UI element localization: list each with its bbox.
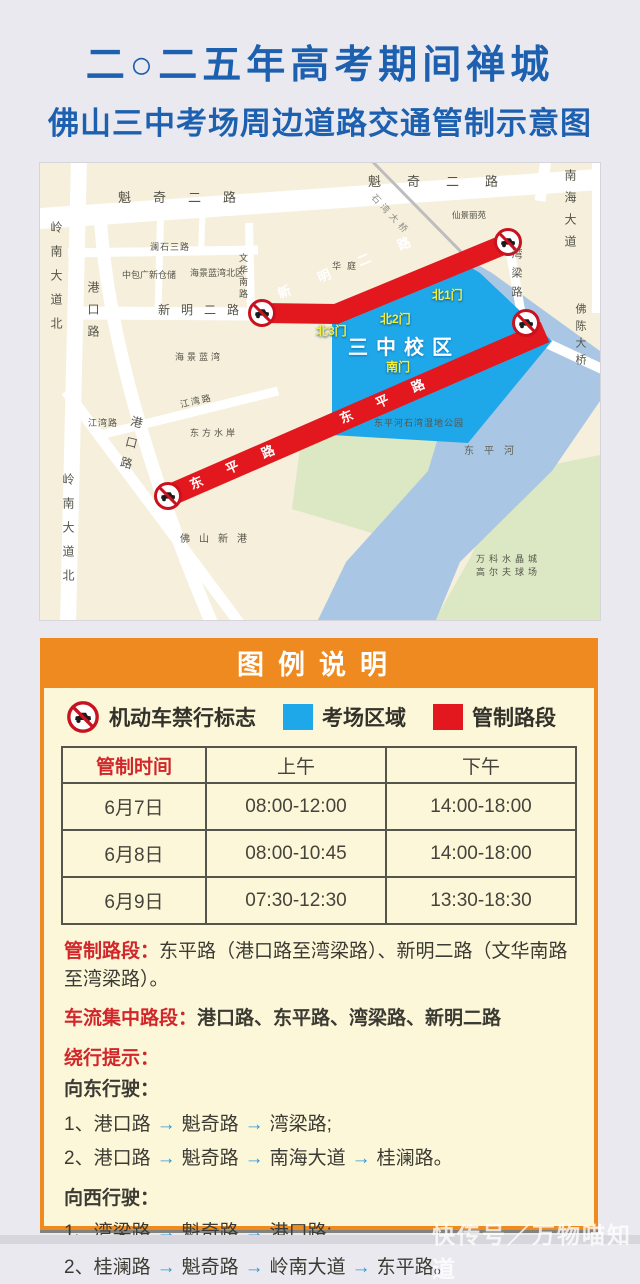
route-stop: 南海大道 (270, 1148, 346, 1169)
traffic-notice-page: { "title": { "line1": "二○二五年高考期间禅城", "li… (0, 0, 640, 1244)
map-label-dongping-he: 东平河 (464, 447, 524, 457)
col-header-morning: 上午 (206, 747, 386, 783)
table-row: 6月7日 08:00-12:00 14:00-18:00 (62, 783, 576, 830)
eastbound-route-2: 2、港口路→魁奇路→南海大道→桂澜路。 (64, 1145, 574, 1173)
no-motor-vehicles-sign (156, 484, 181, 509)
road-minor-3 (540, 163, 546, 201)
arrow-icon: → (151, 1257, 182, 1278)
morning-cell: 08:00-12:00 (206, 783, 386, 830)
date-cell: 6月9日 (62, 877, 206, 924)
no-motor-vehicles-sign (514, 311, 539, 336)
afternoon-cell: 14:00-18:00 (386, 830, 576, 877)
arrow-icon: → (239, 1114, 270, 1135)
map-label-foshan-xingang: 佛山新港 (180, 535, 256, 545)
busy-roads-label: 车流集中路段： (64, 1008, 197, 1029)
school-area-label: 三中校区 (348, 331, 460, 360)
legend-panel: 图例说明 机动车禁行标志 考场区域 管制路段 管制时间 上午 下午 6月7日 0… (40, 638, 598, 1230)
map-label-dongfang-shuian: 东方水岸 (190, 429, 238, 438)
route-stop: 魁奇路 (182, 1257, 239, 1278)
date-cell: 6月8日 (62, 830, 206, 877)
route-stop: 魁奇路 (182, 1148, 239, 1169)
map-label-vanke-1: 万科水晶城 (476, 555, 541, 564)
col-header-afternoon: 下午 (386, 747, 576, 783)
westbound-label: 向西行驶： (64, 1185, 574, 1213)
morning-cell: 08:00-10:45 (206, 830, 386, 877)
map-graphics (40, 163, 600, 620)
restricted-roads-label: 管制路段： (64, 941, 159, 962)
gate-north2-label: 北2门 (380, 313, 411, 325)
page-title: 二○二五年高考期间禅城 佛山三中考场周边道路交通管制示意图 (0, 34, 640, 143)
route-stop: 魁奇路 (182, 1114, 239, 1135)
date-cell: 6月7日 (62, 783, 206, 830)
map-label-wetland-park: 东平河石湾湿地公园 (374, 419, 464, 428)
arrow-icon: → (239, 1257, 270, 1278)
route-stop: 港口路 (94, 1148, 151, 1169)
col-header-time: 管制时间 (62, 747, 206, 783)
legend-exam-area-label: 考场区域 (322, 702, 406, 732)
gate-north3-label: 北3门 (316, 325, 347, 337)
afternoon-cell: 14:00-18:00 (386, 783, 576, 830)
watermark: 快传号／万物喵知道 (432, 1216, 640, 1284)
route-stop: 岭南大道 (270, 1257, 346, 1278)
busy-roads-text: 港口路、东平路、湾梁路、新明二路 (197, 1008, 501, 1029)
route-number: 1、 (64, 1114, 94, 1135)
legend-header: 图例说明 (44, 642, 594, 688)
map-label-kuiqi-er-lu-west: 魁奇二路 (118, 191, 258, 204)
detour-tips-label: 绕行提示： (64, 1045, 574, 1073)
control-schedule-table: 管制时间 上午 下午 6月7日 08:00-12:00 14:00-18:00 … (61, 746, 577, 925)
route-number: 2、 (64, 1257, 94, 1278)
map-label-jiangwan-lu-2: 江湾路 (88, 419, 118, 428)
map-label-haijing-beiqu: 海景蓝湾北区 (190, 269, 244, 278)
arrow-icon: → (239, 1148, 270, 1169)
legend-items-row: 机动车禁行标志 考场区域 管制路段 (66, 700, 584, 734)
route-stop: 湾梁路; (270, 1114, 332, 1135)
map-label-kuiqi-er-lu-east: 魁奇二路 (368, 175, 524, 188)
table-row: 6月9日 07:30-12:30 13:30-18:30 (62, 877, 576, 924)
map-label-gangkou-lu-north: 港口路 (87, 281, 99, 347)
arrow-icon: → (346, 1257, 377, 1278)
restricted-roads-note: 管制路段：东平路（港口路至湾梁路）、新明二路（文华南路至湾梁路）。 (64, 938, 574, 993)
map-label-huating: 华庭 (332, 262, 362, 271)
title-line1: 二○二五年高考期间禅城 (0, 34, 640, 90)
map-label-zhongbao: 中包广新仓储 (122, 271, 176, 280)
route-stop: 桂澜路 (94, 1257, 151, 1278)
eastbound-label: 向东行驶： (64, 1076, 574, 1104)
table-header-row: 管制时间 上午 下午 (62, 747, 576, 783)
map-label-lingnan-dadao-bei-north: 岭南大道北 (50, 221, 62, 341)
gate-north1-label: 北1门 (432, 289, 463, 301)
eastbound-route-1: 1、港口路→魁奇路→湾梁路; (64, 1111, 574, 1139)
road-minor-2 (201, 201, 203, 253)
legend-restricted-label: 管制路段 (472, 702, 556, 732)
busy-roads-note: 车流集中路段：港口路、东平路、湾梁路、新明二路 (64, 1005, 574, 1033)
map-label-fochen-daqiao: 佛陈大桥 (574, 303, 585, 371)
map-label-wenhua-nan-lu: 文华南路 (238, 253, 247, 301)
traffic-map: 新明二路 东平路 东平路 魁奇二路 魁奇二路 岭南大道北 岭南大道北 港口路 港… (40, 163, 600, 620)
map-label-haijing-lanwan: 海景蓝湾 (175, 353, 223, 362)
map-label-xinming-er-lu: 新明二路 (158, 304, 250, 316)
map-label-lanshi-san-lu: 澜石三路 (150, 243, 190, 252)
morning-cell: 07:30-12:30 (206, 877, 386, 924)
map-label-xianjing-liyuan: 仙景丽苑 (452, 211, 486, 220)
afternoon-cell: 13:30-18:30 (386, 877, 576, 924)
restricted-road-swatch (433, 704, 463, 730)
map-label-vanke-2: 高尔夫球场 (476, 568, 541, 577)
road-wenhua-nan-lu (249, 223, 251, 314)
road-minor-1 (158, 199, 161, 313)
route-stop: 桂澜路。 (377, 1148, 453, 1169)
map-label-nanhai-dadao: 南海大道 (564, 169, 576, 257)
no-motor-vehicles-sign (250, 301, 275, 326)
title-line2: 佛山三中考场周边道路交通管制示意图 (0, 98, 640, 143)
legend-no-vehicle-label: 机动车禁行标志 (109, 702, 256, 732)
arrow-icon: → (151, 1114, 182, 1135)
exam-area-swatch (283, 704, 313, 730)
no-motor-vehicles-icon (66, 700, 100, 734)
map-label-lingnan-dadao-bei-south: 岭南大道北 (62, 473, 74, 593)
map-label-wanliang-lu: 湾梁路 (510, 248, 521, 305)
route-number: 2、 (64, 1148, 94, 1169)
arrow-icon: → (151, 1148, 182, 1169)
table-row: 6月8日 08:00-10:45 14:00-18:00 (62, 830, 576, 877)
arrow-icon: → (346, 1148, 377, 1169)
gate-south-label: 南门 (386, 361, 410, 373)
route-stop: 港口路 (94, 1114, 151, 1135)
